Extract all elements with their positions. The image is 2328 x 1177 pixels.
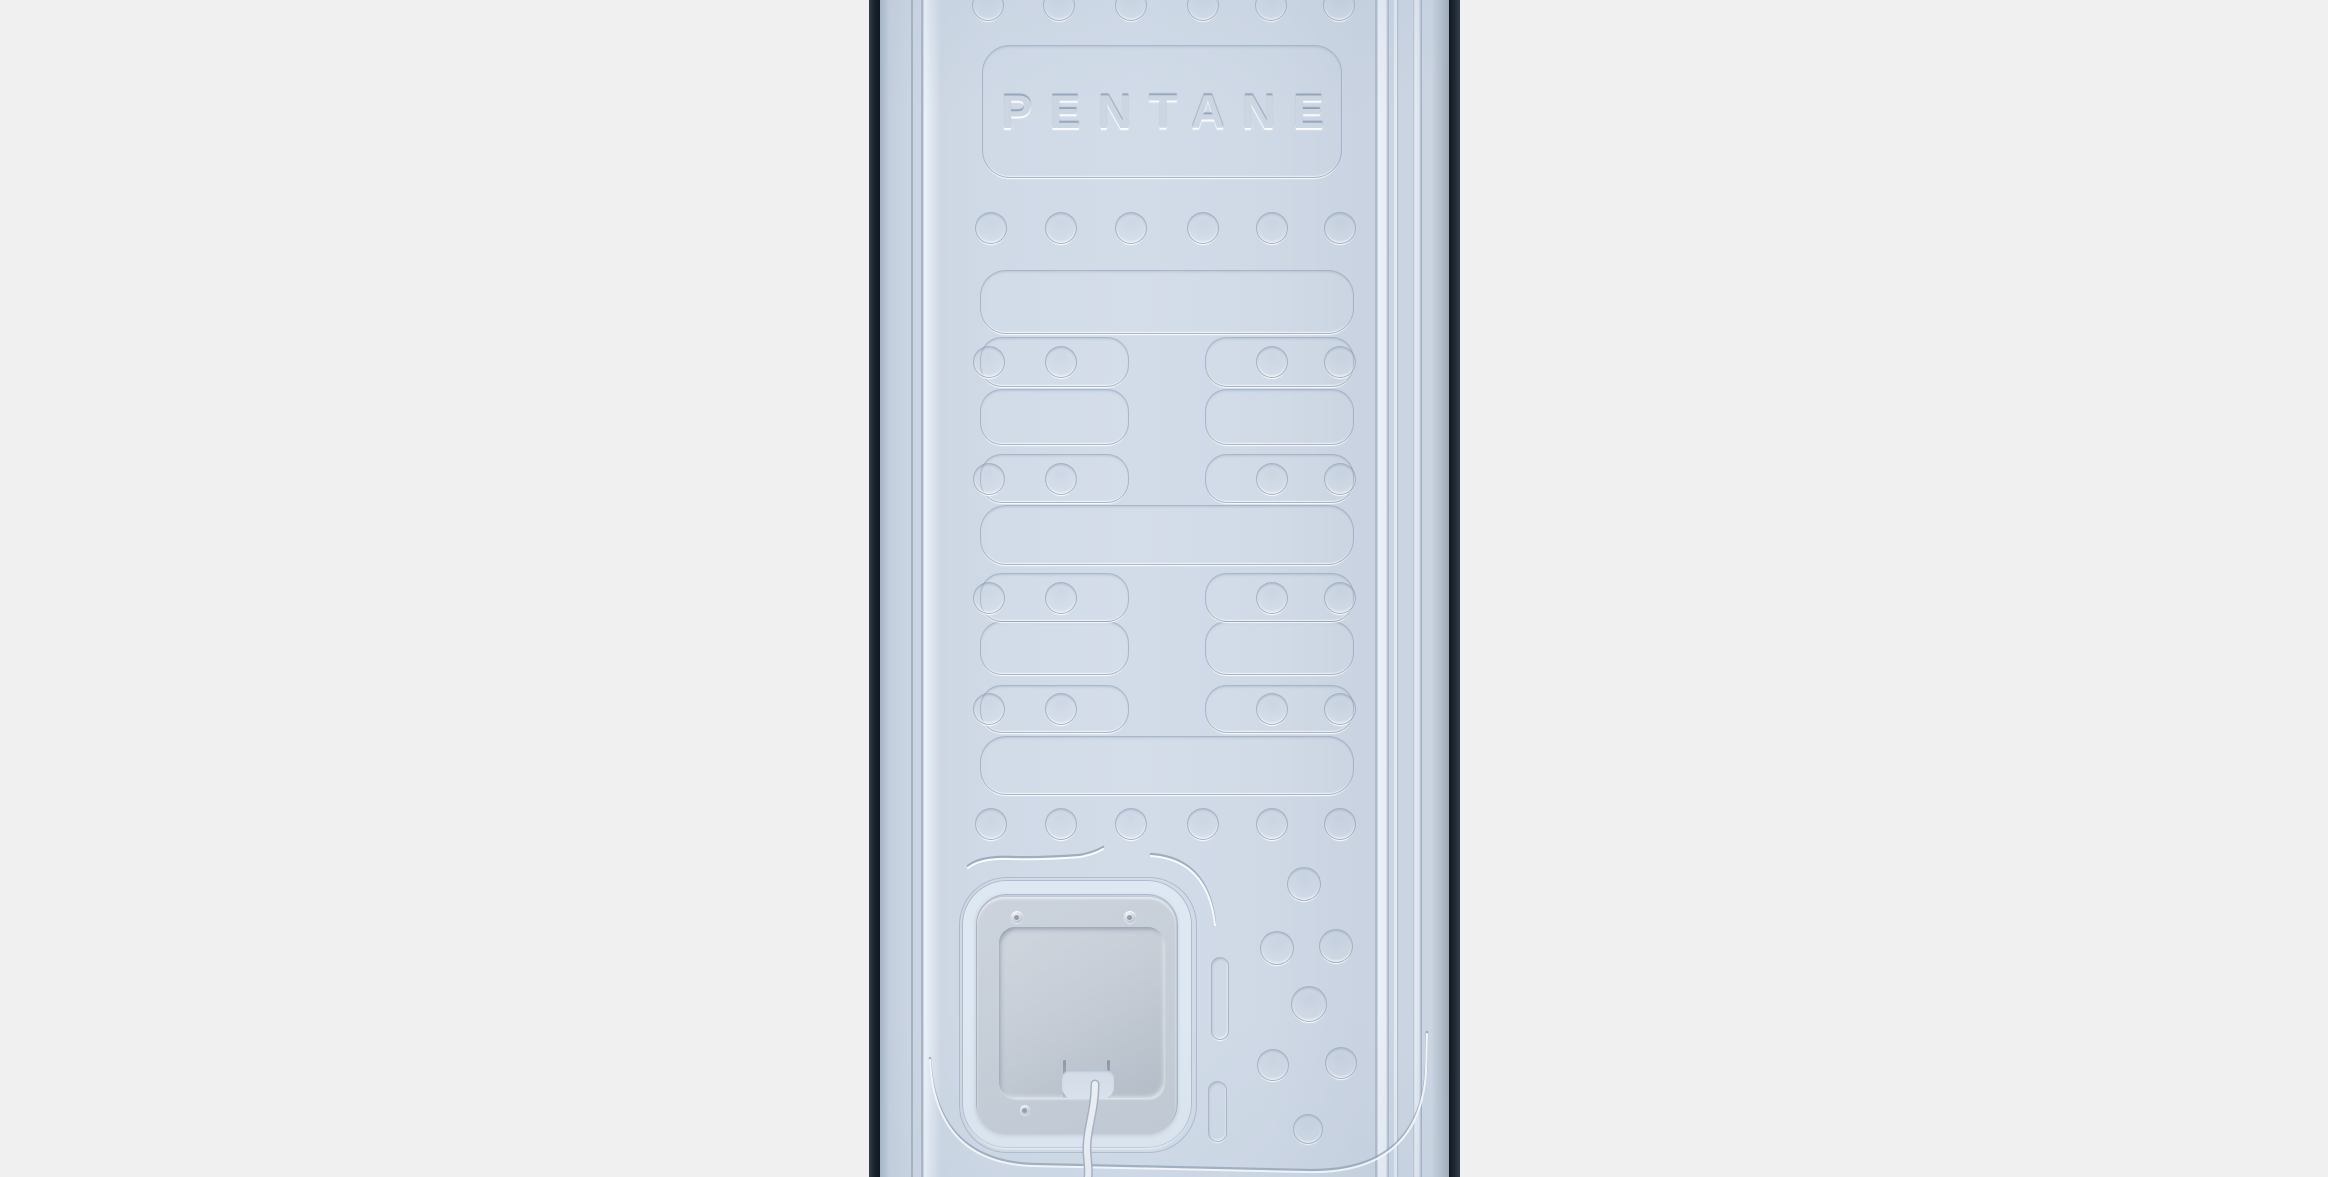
panel-dark-edge-right [1449, 0, 1460, 1177]
panel-dark-edge-left [869, 0, 880, 1177]
corner-arc-highlight [1151, 856, 1215, 925]
appliance-back-panel: PENTANE [880, 0, 1449, 1177]
scene-background: PENTANE [0, 0, 2328, 1177]
bottom-trim-highlight [930, 1034, 1427, 1172]
bottom-trim-groove [930, 1032, 1427, 1170]
embossed-lines-layer [880, 0, 1449, 1177]
